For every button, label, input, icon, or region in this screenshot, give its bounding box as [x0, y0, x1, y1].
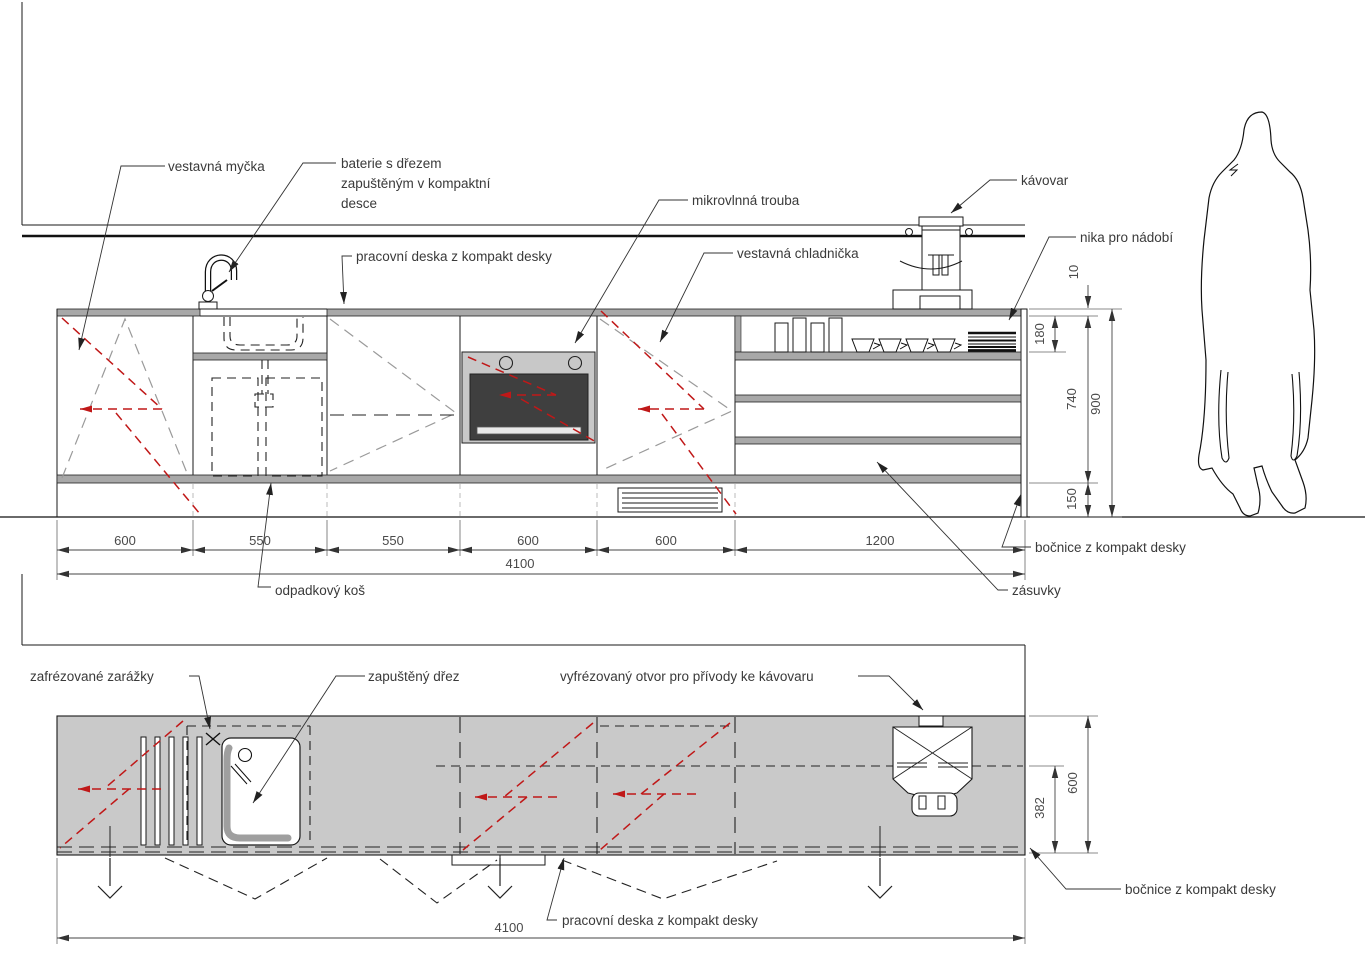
label-faucet-2: zapuštěným v kompaktní [341, 176, 491, 191]
elevation-height-dimensions: 10 180 740 150 900 [1029, 265, 1122, 517]
coffee-machine-elevation [893, 217, 973, 309]
plate-stack [968, 333, 1016, 351]
dim-550-2: 550 [382, 533, 404, 548]
human-figure-silhouette [1199, 112, 1315, 516]
trash-bin-left [212, 378, 258, 476]
kitchen-technical-drawing: 600 550 550 600 600 1200 4100 10 180 740… [0, 0, 1365, 965]
drawing-canvas: 600 550 550 600 600 1200 4100 10 180 740… [0, 0, 1365, 965]
drain-pipe [262, 360, 268, 394]
label-faucet-1: baterie s dřezem [341, 156, 442, 171]
dim-900: 900 [1088, 393, 1103, 415]
label-milled-stops: zafrézované zarážky [30, 669, 154, 684]
plan-wall-lines [22, 574, 1025, 716]
dim-180: 180 [1032, 323, 1047, 345]
dim-600-2: 600 [517, 533, 539, 548]
elevation-labels: vestavná myčka baterie s dřezem zapuštěn… [79, 156, 1186, 598]
side-panel [1021, 309, 1027, 517]
fridge-vent-grille [618, 488, 722, 512]
dim-382: 382 [1032, 797, 1047, 819]
microwave-handle [477, 427, 581, 434]
label-worktop-elevation: pracovní deska z kompakt desky [356, 249, 552, 264]
cups [852, 339, 961, 352]
elevation-view: 600 550 550 600 600 1200 4100 10 180 740… [0, 2, 1365, 598]
dim-total-4100: 4100 [506, 556, 535, 571]
label-worktop-plan: pracovní deska z kompakt desky [562, 913, 758, 928]
bottom-rail [57, 475, 1023, 483]
label-trash-bin: odpadkový koš [275, 583, 365, 598]
glasses [775, 318, 842, 352]
worktop-band [57, 309, 1023, 316]
label-fridge: vestavná chladnička [737, 246, 859, 261]
trash-bin-right [266, 378, 322, 476]
elevation-width-dimensions: 600 550 550 600 600 1200 4100 [57, 520, 1025, 580]
faucet [199, 258, 234, 309]
niche-and-drawers [735, 316, 1021, 444]
coffee-supply-cutout [919, 716, 943, 726]
dim-600-1: 600 [114, 533, 136, 548]
door-swing-symbols-elevation [62, 311, 736, 514]
label-coffee-cutout: vyfrézovaný otvor pro přívody ke kávovar… [560, 669, 814, 684]
front-protrusion [452, 855, 545, 865]
dim-10: 10 [1066, 265, 1081, 279]
label-dishwasher: vestavná myčka [168, 159, 265, 174]
faucet-hole [239, 749, 252, 762]
label-faucet-3: desce [341, 196, 377, 211]
plan-view: 4100 382 600 zafrézované zarážky zapuště… [22, 574, 1276, 944]
label-side-panel-elevation: bočnice z kompakt desky [1035, 540, 1186, 555]
label-coffee-machine: kávovar [1021, 173, 1069, 188]
dim-150: 150 [1064, 488, 1079, 510]
label-microwave: mikrovlnná trouba [692, 193, 800, 208]
wall-lines [0, 2, 1365, 517]
wall-socket-right [966, 229, 973, 236]
dim-plan-600: 600 [1065, 772, 1080, 794]
label-drawers: zásuvky [1012, 583, 1061, 598]
niche-shelf [735, 352, 1021, 360]
label-niche: nika pro nádobí [1080, 230, 1173, 245]
dim-550-1: 550 [249, 533, 271, 548]
dim-740: 740 [1064, 388, 1079, 410]
wall-socket-left [906, 229, 913, 236]
dim-600-3: 600 [655, 533, 677, 548]
label-recessed-sink: zapuštěný dřez [368, 669, 460, 684]
dim-1200: 1200 [866, 533, 895, 548]
sink-cabinet [193, 317, 327, 476]
label-side-panel-plan: bočnice z kompakt desky [1125, 882, 1276, 897]
dim-plan-4100: 4100 [495, 920, 524, 935]
